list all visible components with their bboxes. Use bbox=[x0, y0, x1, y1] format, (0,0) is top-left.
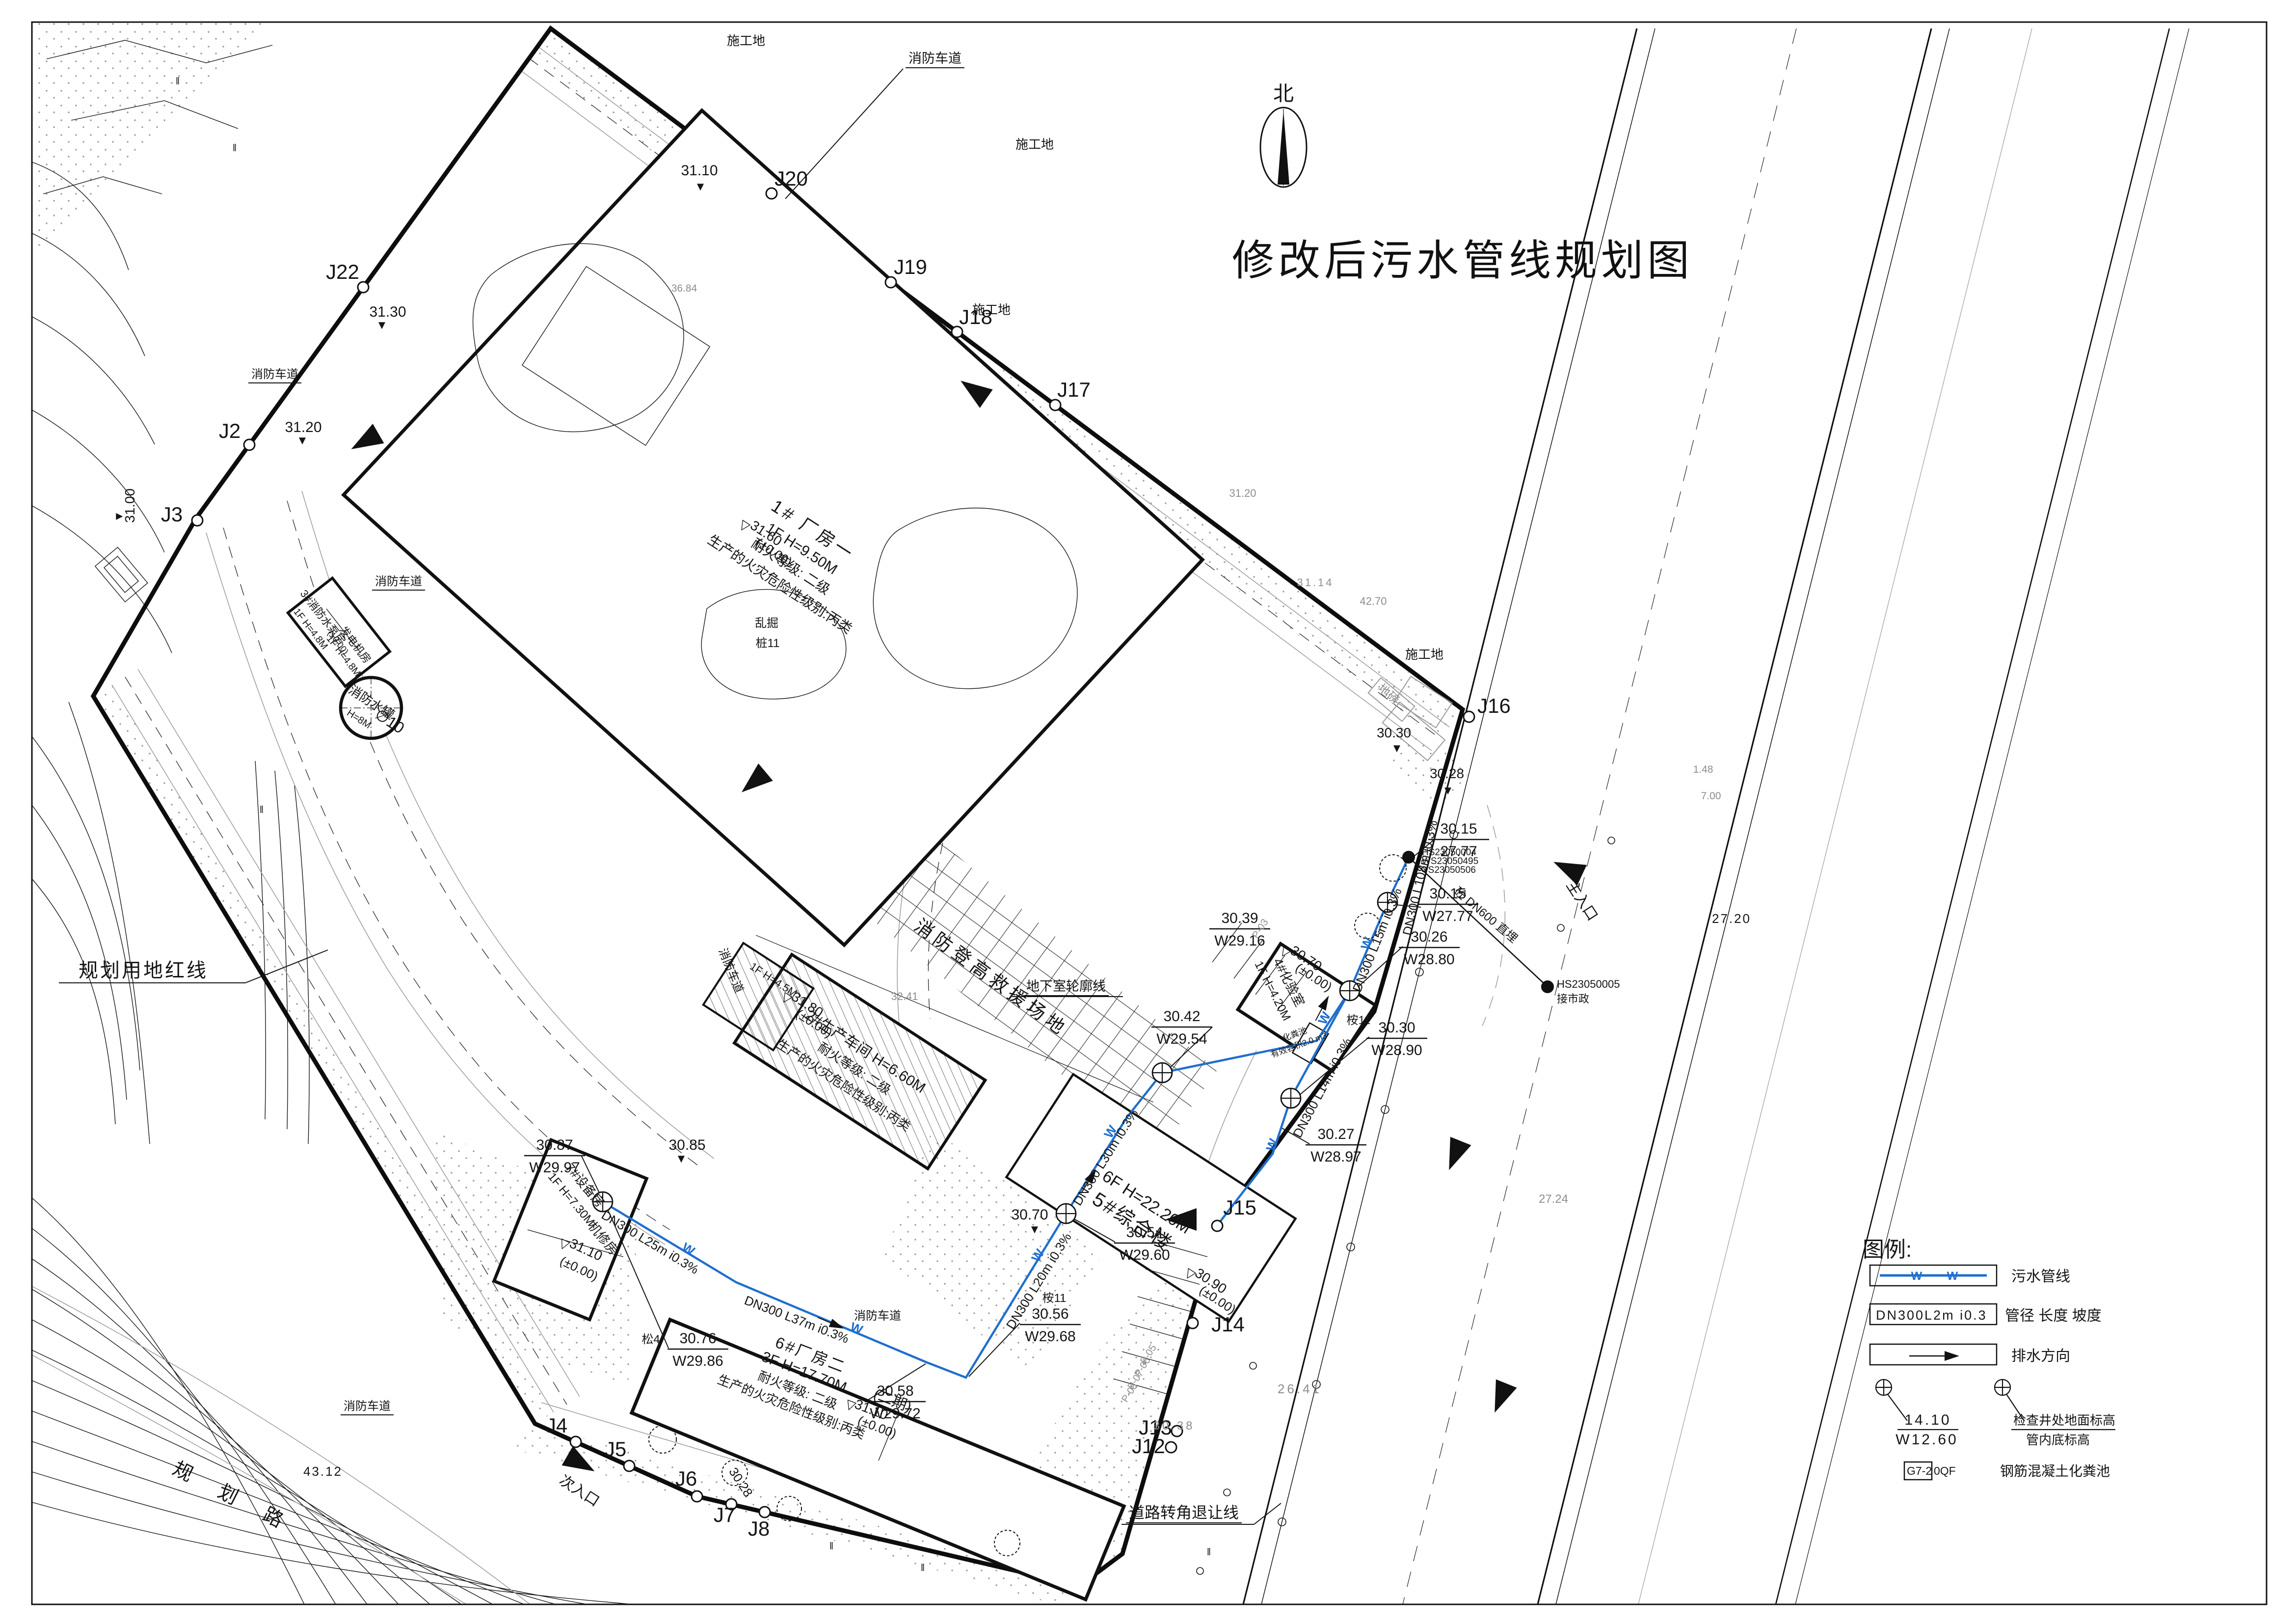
junction-circle-J2 bbox=[244, 439, 255, 450]
elev-top-10: 30.76 bbox=[679, 1330, 716, 1347]
label-115: ‖ bbox=[921, 1563, 925, 1573]
label-43: 30.30 bbox=[1377, 725, 1411, 740]
junction-circle-J19 bbox=[885, 277, 896, 288]
junction-circle-J5 bbox=[624, 1461, 635, 1471]
elev-top-3: 30.30 bbox=[1378, 1020, 1415, 1036]
road-arrow-icon bbox=[1495, 1380, 1517, 1413]
elev-top-4: 30.27 bbox=[1317, 1126, 1354, 1142]
legend-heading: 图例: bbox=[1863, 1238, 1912, 1262]
label-61: ▼ bbox=[1029, 1223, 1041, 1236]
elev-bottom-2: W28.80 bbox=[1404, 951, 1454, 968]
junction-label-J20: J20 bbox=[774, 167, 808, 190]
label-60: ▼ bbox=[675, 1152, 687, 1165]
label-111: ‖ bbox=[176, 76, 180, 87]
legend-pipe-spec: DN300L2m i0.3 bbox=[1876, 1308, 1987, 1323]
junction-label-J19: J19 bbox=[894, 255, 927, 278]
junction-label-J14: J14 bbox=[1211, 1313, 1245, 1336]
label-13: 主入口 bbox=[1563, 878, 1601, 923]
junction-label-J7: J7 bbox=[714, 1503, 735, 1526]
junction-circle-J22 bbox=[358, 282, 369, 293]
junction-circle-J4 bbox=[570, 1436, 581, 1447]
label-45: 26.41 bbox=[1278, 1381, 1322, 1396]
label-9: 消防车道 bbox=[344, 1400, 391, 1413]
substation-small-rects bbox=[95, 547, 148, 602]
label-15: 地下室轮廓线 bbox=[1026, 979, 1106, 994]
label-40: 30.70 bbox=[1011, 1207, 1048, 1223]
north-arrow: 北 bbox=[1260, 82, 1307, 187]
label-17: 乱掘 bbox=[755, 617, 778, 630]
junction-label-J17: J17 bbox=[1057, 378, 1091, 401]
site-plan-svg: 北 修改后污水管线规划图 图例: W W 污水管线 DN300L2m i0.3 … bbox=[0, 0, 2296, 1624]
junction-label-J6: J6 bbox=[675, 1467, 697, 1490]
junction-circle-J14 bbox=[1187, 1318, 1198, 1328]
junction-circle-J12 bbox=[1166, 1442, 1176, 1453]
elev-bottom-1: W27.77 bbox=[1422, 908, 1473, 924]
label-112: ‖ bbox=[233, 143, 237, 154]
legend-flow-label: 排水方向 bbox=[2011, 1348, 2070, 1364]
legend-pipe-spec-label: 管径 长度 坡度 bbox=[2005, 1308, 2102, 1324]
label-50: 31.20 bbox=[1229, 487, 1256, 499]
label-56: ▼ bbox=[694, 180, 706, 193]
junction-circle-J8 bbox=[759, 1507, 770, 1517]
legend-manhole-top: 14.10 bbox=[1904, 1412, 1951, 1428]
label-118: DN300 L37m i0.3% bbox=[743, 1293, 851, 1346]
elev-bottom-4: W28.97 bbox=[1310, 1149, 1361, 1165]
label-10: 规划用地红线 bbox=[79, 960, 208, 981]
legend-septic-code-in: G7-2 bbox=[1907, 1464, 1932, 1477]
label-48: 30.38 bbox=[1153, 1419, 1195, 1433]
road-arrow-icon bbox=[351, 424, 384, 449]
label-5: 消防车道 bbox=[251, 368, 298, 381]
elev-top-5: 30.39 bbox=[1221, 910, 1258, 926]
label-49: 32.41 bbox=[891, 990, 918, 1002]
label-42: 30.28 bbox=[1430, 766, 1464, 781]
label-3: 施工地 bbox=[1405, 647, 1443, 662]
tree-icon bbox=[1380, 855, 1406, 881]
legend-pipeline-label: 污水管线 bbox=[2011, 1269, 2070, 1285]
elev-bottom-10: W29.86 bbox=[672, 1353, 723, 1369]
label-57: ▼ bbox=[376, 319, 388, 332]
label-52: 42.70 bbox=[1360, 595, 1387, 607]
label-12: 次入口 bbox=[556, 1472, 602, 1510]
road-arrow-icon bbox=[1449, 1137, 1471, 1170]
label-63: ▼ bbox=[1391, 742, 1403, 755]
junction-label-J2: J2 bbox=[219, 419, 240, 442]
label-20: 桉11 bbox=[1347, 1014, 1371, 1027]
junction-circle-J3 bbox=[192, 515, 203, 526]
north-label: 北 bbox=[1273, 82, 1294, 105]
legend: 图例: W W 污水管线 DN300L2m i0.3 管径 长度 坡度 排水方向… bbox=[1863, 1238, 2115, 1480]
elev-bottom-3: W28.90 bbox=[1371, 1042, 1422, 1058]
junction-label-J8: J8 bbox=[748, 1517, 770, 1540]
label-55: 7.00 bbox=[1701, 790, 1721, 802]
label-47: 27.24 bbox=[1539, 1192, 1568, 1206]
elev-top-0: 30.15 bbox=[1440, 821, 1477, 837]
label-46: 27.20 bbox=[1712, 911, 1751, 926]
label-58: ▼ bbox=[296, 434, 308, 447]
label-39: 30.85 bbox=[668, 1137, 705, 1153]
label-14: 道路转角退让线 bbox=[1129, 1504, 1239, 1521]
pipe-node-icon bbox=[1541, 980, 1554, 993]
label-2: 施工地 bbox=[972, 302, 1011, 317]
junction-circle-J17 bbox=[1050, 400, 1061, 410]
label-59: ▼ bbox=[112, 511, 126, 522]
label-116: ‖ bbox=[1207, 1547, 1211, 1558]
legend-manhole-bottom: W12.60 bbox=[1896, 1432, 1958, 1448]
elev-top-2: 30.26 bbox=[1411, 929, 1447, 945]
label-8: 消防车道 bbox=[854, 1309, 901, 1323]
elev-bottom-8: W29.68 bbox=[1025, 1328, 1075, 1345]
junction-circle-J16 bbox=[1464, 711, 1474, 722]
elev-top-6: 30.42 bbox=[1163, 1008, 1200, 1025]
legend-septic-label: 钢筋混凝土化粪池 bbox=[2000, 1463, 2110, 1479]
svg-text:W: W bbox=[1947, 1270, 1958, 1283]
label-28: 接市政 bbox=[1557, 993, 1589, 1005]
junction-label-J3: J3 bbox=[161, 503, 183, 526]
drawing-title: 修改后污水管线规划图 bbox=[1232, 237, 1693, 284]
label-1: 施工地 bbox=[1015, 137, 1054, 152]
junction-label-J4: J4 bbox=[546, 1414, 567, 1437]
label-0: 施工地 bbox=[727, 33, 765, 48]
label-114: ‖ bbox=[829, 1541, 833, 1552]
label-54: 1.48 bbox=[1693, 764, 1713, 775]
junction-label-J15: J15 bbox=[1223, 1196, 1256, 1219]
elev-top-8: 30.56 bbox=[1032, 1306, 1068, 1322]
label-36: 31.30 bbox=[369, 304, 406, 320]
legend-manhole-label-top: 检查井处地面标高 bbox=[2013, 1413, 2115, 1428]
junction-label-J5: J5 bbox=[605, 1437, 626, 1461]
tree-icon bbox=[649, 1426, 676, 1453]
elev-top-11: 30.87 bbox=[536, 1137, 573, 1153]
junction-circle-J15 bbox=[1212, 1220, 1223, 1231]
junction-label-J12: J12 bbox=[1132, 1435, 1165, 1458]
drawing-sheet: 北 修改后污水管线规划图 图例: W W 污水管线 DN300L2m i0.3 … bbox=[0, 0, 2296, 1624]
label-19: 桉11 bbox=[1042, 1292, 1067, 1305]
legend-manhole-label-bottom: 管内底标高 bbox=[2026, 1433, 2090, 1447]
label-113: ‖ bbox=[260, 805, 264, 815]
elev-bottom-6: W29.54 bbox=[1156, 1031, 1207, 1047]
label-6: 消防车道 bbox=[375, 575, 422, 588]
label-37: 31.20 bbox=[285, 419, 321, 435]
label-35: 31.10 bbox=[681, 162, 718, 179]
label-44: 43.12 bbox=[303, 1464, 343, 1479]
label-62: ▼ bbox=[1442, 784, 1454, 797]
label-27: HS23050005 bbox=[1557, 978, 1620, 990]
junction-label-J22: J22 bbox=[326, 260, 359, 283]
legend-septic-code-out: 0QF bbox=[1934, 1464, 1956, 1477]
label-18: 桩11 bbox=[756, 637, 780, 650]
label-21: 松4 bbox=[641, 1333, 660, 1346]
label-4: 消防车道 bbox=[908, 51, 961, 66]
label-51: 31.14 bbox=[1297, 576, 1334, 589]
label-53: 36.84 bbox=[671, 283, 697, 294]
junction-label-J16: J16 bbox=[1477, 694, 1511, 717]
svg-text:W: W bbox=[1911, 1270, 1922, 1283]
junction-circle-J6 bbox=[692, 1491, 702, 1502]
